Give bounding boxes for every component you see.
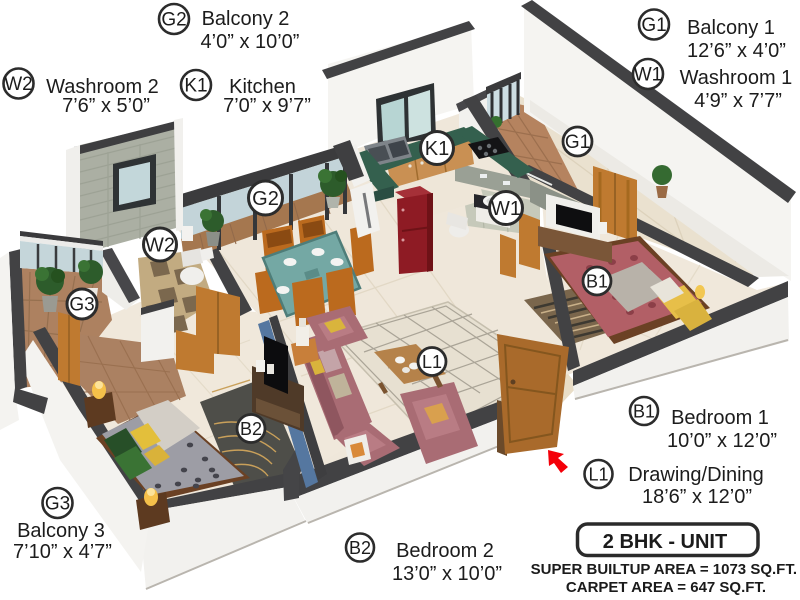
svg-text:W1: W1 <box>634 65 663 86</box>
svg-text:G1: G1 <box>641 15 666 36</box>
svg-text:K1: K1 <box>184 76 207 97</box>
svg-text:12’6” x 4’0”: 12’6” x 4’0” <box>687 40 786 62</box>
svg-text:W1: W1 <box>491 198 521 220</box>
svg-text:L1: L1 <box>422 352 442 372</box>
svg-text:B1: B1 <box>586 272 608 292</box>
svg-text:K1: K1 <box>425 138 449 160</box>
svg-text:G3: G3 <box>45 494 70 515</box>
svg-text:B2: B2 <box>349 538 371 558</box>
svg-text:Balcony 3: Balcony 3 <box>17 520 105 542</box>
svg-text:Drawing/Dining: Drawing/Dining <box>628 464 764 486</box>
svg-text:4’0” x 10’0”: 4’0” x 10’0” <box>201 31 300 53</box>
svg-text:L1: L1 <box>588 465 608 485</box>
svg-text:G1: G1 <box>565 132 590 153</box>
svg-text:Washroom 1: Washroom 1 <box>680 67 793 89</box>
svg-text:7’0” x 9’7”: 7’0” x 9’7” <box>223 95 311 117</box>
svg-text:7’10” x 4’7”: 7’10” x 4’7” <box>13 541 112 563</box>
svg-text:CARPET AREA = 647 SQ.FT.: CARPET AREA = 647 SQ.FT. <box>566 579 766 596</box>
svg-text:7’6” x 5’0”: 7’6” x 5’0” <box>62 95 150 117</box>
svg-text:10’0” x 12’0”: 10’0” x 12’0” <box>667 430 777 452</box>
svg-text:Bedroom 2: Bedroom 2 <box>396 540 494 562</box>
svg-text:SUPER BUILTUP AREA = 1073 SQ.F: SUPER BUILTUP AREA = 1073 SQ.FT. <box>531 561 797 578</box>
svg-text:G2: G2 <box>161 10 186 31</box>
svg-text:B1: B1 <box>633 402 655 422</box>
svg-text:18’6” x 12’0”: 18’6” x 12’0” <box>642 486 752 508</box>
svg-text:13’0” x 10’0”: 13’0” x 10’0” <box>392 563 502 585</box>
svg-text:W2: W2 <box>4 74 33 95</box>
svg-text:2 BHK - UNIT: 2 BHK - UNIT <box>603 531 727 553</box>
svg-text:W2: W2 <box>145 235 175 257</box>
svg-text:G2: G2 <box>252 188 279 210</box>
svg-text:B2: B2 <box>240 419 262 439</box>
svg-text:Balcony 1: Balcony 1 <box>687 17 775 39</box>
svg-text:Balcony 2: Balcony 2 <box>202 8 290 30</box>
svg-text:G3: G3 <box>69 295 94 316</box>
svg-text:Bedroom 1: Bedroom 1 <box>671 407 769 429</box>
svg-text:4’9” x 7’7”: 4’9” x 7’7” <box>694 90 782 112</box>
